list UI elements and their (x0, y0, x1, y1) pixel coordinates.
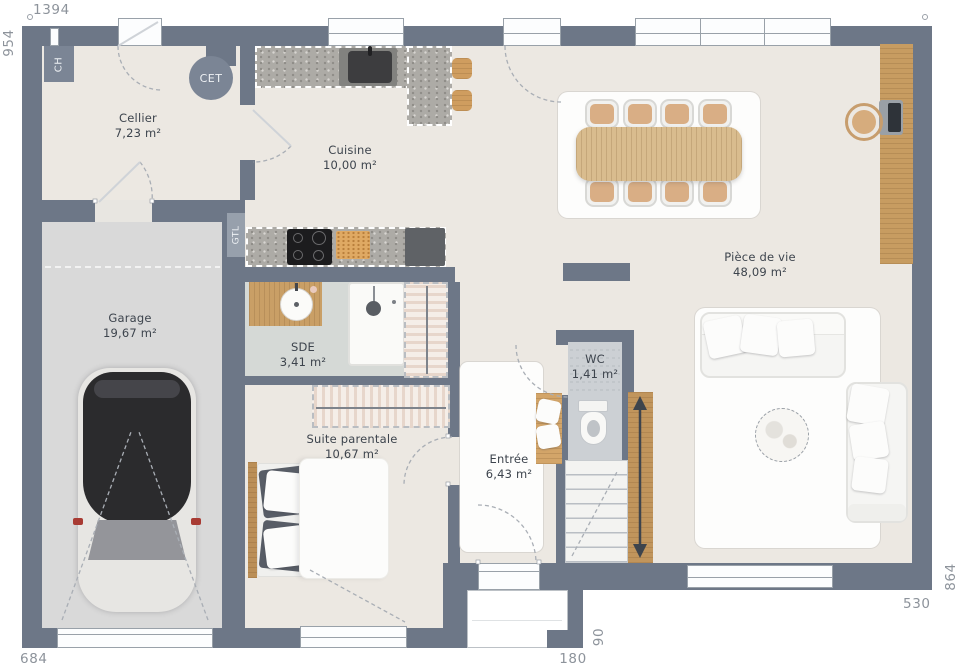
chair-seat (703, 182, 727, 202)
car-mirror-right (191, 518, 201, 525)
bench-pillow-2 (535, 423, 562, 450)
window-divider (700, 19, 701, 45)
room-label-wc: WC 1,41 m² (572, 352, 618, 382)
room-name: WC (572, 352, 618, 367)
car (78, 368, 196, 612)
room-label-garage: Garage 19,67 m² (103, 311, 157, 341)
room-name: Garage (103, 311, 157, 326)
car-windshield (88, 520, 186, 560)
sde-sink-drain (294, 302, 299, 307)
dining-chair (660, 99, 694, 129)
garage-door (57, 628, 213, 648)
cooktop-burner-3 (293, 250, 303, 260)
wardrobe-vertical (404, 282, 448, 378)
kitchen-window (328, 18, 404, 46)
door-gap-bedroom (448, 437, 460, 485)
dining-chair (623, 177, 657, 207)
room-label-sde: SDE 3,41 m² (280, 340, 326, 370)
room-area: 48,09 m² (724, 265, 796, 280)
dim-tick (28, 15, 33, 20)
desk-chair-seat (852, 110, 876, 134)
living-window-wide (635, 18, 831, 46)
room-name: Suite parentale (306, 432, 397, 447)
ch-label: CH (53, 56, 64, 72)
gtl-label: GTL (231, 226, 241, 245)
dining-chair (698, 99, 732, 129)
bar-stool-1 (452, 58, 472, 79)
kitchen-faucet (368, 46, 372, 56)
bedroom-window (300, 626, 407, 648)
sde-faucet (295, 283, 298, 291)
door-gap-cellier-kitchen (240, 105, 255, 160)
dim-tick (923, 15, 928, 20)
sofa-pillow-3 (776, 318, 815, 357)
door-gap-wc (556, 345, 568, 395)
dining-chair (698, 177, 732, 207)
room-label-suite-parentale: Suite parentale 10,67 m² (306, 432, 397, 462)
room-label-cuisine: Cuisine 10,00 m² (323, 143, 377, 173)
sofa-pillow-4 (846, 383, 890, 427)
vent-slit (50, 28, 59, 46)
door-gap-cellier-garage (95, 200, 152, 222)
kitchen-appliance (405, 228, 445, 266)
wall-left (22, 26, 42, 648)
dim-height-left: 954 (1, 23, 15, 63)
room-area: 7,23 m² (115, 126, 161, 141)
chair-seat (703, 104, 727, 124)
front-door (478, 563, 540, 590)
room-name: Cellier (115, 111, 161, 126)
chair-seat (628, 104, 652, 124)
cet-badge: CET (189, 56, 233, 100)
window-divider (764, 19, 765, 45)
desk (880, 44, 913, 264)
dim-garage-width: 684 (20, 651, 48, 667)
wall-porch-bottom (547, 630, 583, 648)
sofa-pillow-6 (851, 456, 889, 494)
cellier-back-door (118, 18, 162, 46)
wall-right (912, 26, 932, 590)
shower-valve (392, 300, 396, 304)
dining-table (576, 127, 742, 181)
room-name: Cuisine (323, 143, 377, 158)
wall-stairs-left (556, 460, 565, 563)
staircase (565, 460, 628, 563)
cooktop-burner-2 (312, 231, 326, 245)
wardrobe-rail (316, 407, 446, 409)
living-glass-door (503, 18, 561, 46)
cooktop-burner-4 (313, 250, 324, 261)
porch-step-line (472, 620, 562, 621)
wardrobe-horizontal (312, 385, 450, 428)
room-area: 3,41 m² (280, 355, 326, 370)
bed-headboard (248, 462, 257, 578)
shower (348, 282, 405, 366)
room-name: SDE (280, 340, 326, 355)
room-area: 1,41 m² (572, 367, 618, 382)
room-label-entree: Entrée 6,43 m² (486, 452, 532, 482)
cutting-board (336, 231, 370, 259)
dining-chair (660, 177, 694, 207)
cet-label: CET (200, 72, 223, 85)
wall-kitchen-bottom (245, 267, 455, 282)
sofa-pillow-5 (848, 420, 889, 461)
living-window-bottom (687, 565, 833, 588)
bar-stool-2 (452, 90, 472, 111)
room-area: 6,43 m² (486, 467, 532, 482)
chair-seat (665, 104, 689, 124)
room-label-cellier: Cellier 7,23 m² (115, 111, 161, 141)
chair-seat (590, 182, 614, 202)
wardrobe-rail (426, 286, 428, 374)
sliding-door-column (628, 392, 653, 563)
wall-garage-right (222, 222, 245, 648)
chair-seat (665, 182, 689, 202)
sde-soap-dish (310, 286, 317, 293)
room-name: Pièce de vie (724, 250, 796, 265)
dining-chair (623, 99, 657, 129)
toilet-bowl-inner (587, 420, 600, 437)
dim-living-width: 530 (903, 596, 931, 612)
cooktop-burner-1 (293, 233, 303, 243)
coffee-table (755, 408, 809, 462)
dim-height-right: 864 (943, 557, 957, 597)
wall-porch-connector (443, 590, 467, 648)
shower-head (366, 301, 381, 316)
room-label-piece-de-vie: Pièce de vie 48,09 m² (724, 250, 796, 280)
floor-plan: CH CET GTL (0, 0, 960, 671)
dim-porch-depth: 90 (591, 617, 605, 657)
wall-wc-top (556, 330, 634, 342)
dining-chair (585, 177, 619, 207)
bench-pillow-1 (535, 398, 562, 425)
sofa-right-armrest (848, 504, 906, 521)
desk-monitor-screen (888, 103, 901, 132)
room-area: 19,67 m² (103, 326, 157, 341)
dining-chair (585, 99, 619, 129)
car-mirror-left (73, 518, 83, 525)
sofa-pillow-2 (740, 314, 783, 357)
bed-duvet (299, 458, 389, 579)
kitchen-counter-corner (407, 46, 452, 126)
chair-seat (628, 182, 652, 202)
ch-badge: CH (44, 46, 74, 82)
dim-width-top: 1394 (33, 2, 70, 18)
room-area: 10,67 m² (306, 447, 397, 462)
room-name: Entrée (486, 452, 532, 467)
room-area: 10,00 m² (323, 158, 377, 173)
gtl-badge: GTL (227, 213, 245, 257)
car-rear-window (94, 380, 180, 398)
chair-seat (590, 104, 614, 124)
wall-living-stub (563, 263, 630, 281)
